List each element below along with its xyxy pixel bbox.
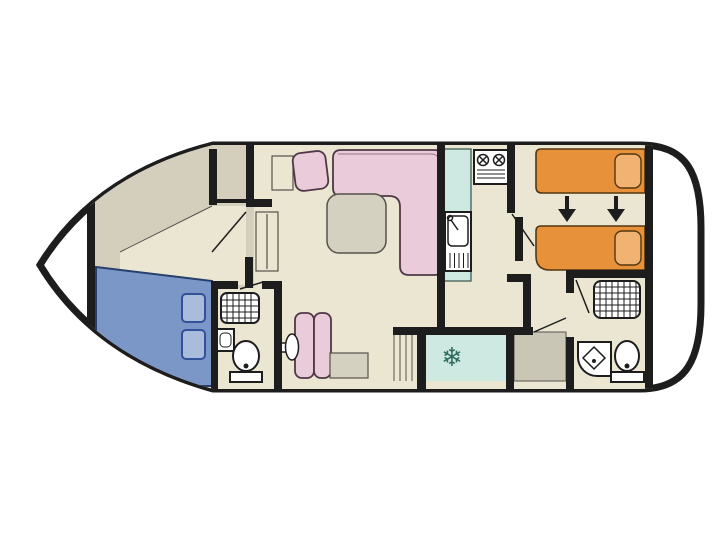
wall-segment (211, 283, 218, 389)
toilet-flush-dot (625, 364, 630, 369)
snowflake-icon: ❄ (441, 343, 463, 373)
stern-hatch-area (514, 332, 566, 381)
wall-segment (507, 142, 515, 213)
pedestal-table (286, 334, 299, 360)
wall-segment (274, 281, 282, 389)
wall-segment (566, 270, 574, 293)
wall-segment (211, 281, 238, 289)
stove-hob (474, 150, 508, 184)
wall-segment (566, 270, 653, 278)
twin-bed-pillow (615, 154, 641, 188)
wall-segment (87, 200, 95, 332)
low-table (330, 353, 368, 378)
wall-segment (246, 145, 254, 207)
basin-drain-dot (592, 359, 596, 363)
boat-floorplan: ❄ (0, 0, 720, 539)
wall-segment (215, 199, 246, 203)
fridge-freezer (426, 335, 507, 381)
wall-segment (417, 327, 426, 389)
wall-segment (506, 331, 514, 389)
boat-floorplan-canvas: ❄ (0, 0, 720, 539)
double-bed-pillow (182, 330, 205, 359)
double-bed-pillow (182, 294, 205, 322)
twin-bed-pillow (615, 231, 641, 265)
wall-segment (245, 257, 253, 288)
wall-segment (437, 145, 445, 335)
dinette-table (327, 194, 386, 253)
wall-segment (566, 337, 574, 389)
wall-segment (246, 199, 272, 207)
side-chair (292, 150, 329, 192)
wall-segment (645, 141, 653, 389)
toilet-tank-forward (230, 372, 262, 382)
wall-segment (262, 281, 275, 289)
bench-seat-cushion (314, 313, 331, 378)
wall-segment (523, 274, 531, 334)
cupboard (272, 156, 293, 190)
toilet-flush-dot (244, 364, 249, 369)
wall-segment (209, 149, 217, 205)
toilet-tank-rear (611, 372, 644, 382)
